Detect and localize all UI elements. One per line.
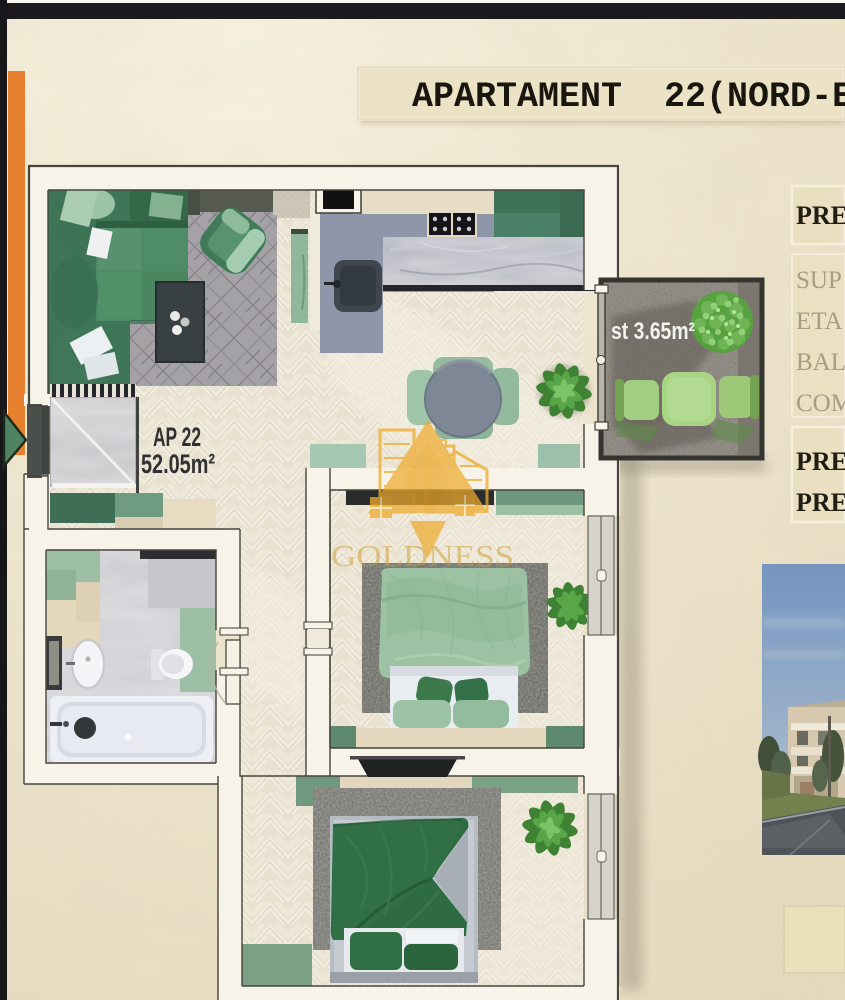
svg-text:st 3.65m²: st 3.65m² (611, 318, 695, 345)
svg-text:APARTAMENT 22(NORD-E: APARTAMENT 22(NORD-E (412, 77, 845, 117)
svg-text:SUP: SUP (796, 267, 842, 294)
svg-text:AP 22: AP 22 (153, 422, 201, 452)
svg-text:PRE: PRE (796, 488, 845, 517)
svg-text:COM: COM (796, 390, 845, 417)
svg-text:BAL: BAL (796, 349, 845, 376)
svg-text:52.05m²: 52.05m² (141, 449, 215, 479)
svg-text:PRE: PRE (796, 201, 845, 230)
svg-text:GOLDNESS: GOLDNESS (331, 538, 514, 573)
svg-text:ETA: ETA (796, 308, 843, 335)
svg-text:PRE: PRE (796, 447, 845, 476)
